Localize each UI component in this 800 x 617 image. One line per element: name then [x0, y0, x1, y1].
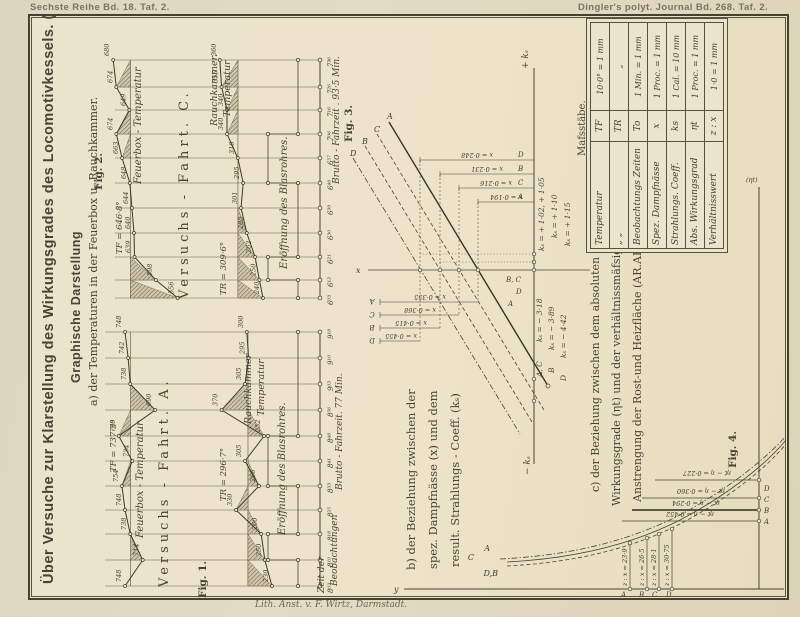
fig1-rauchkammer-series-label-2: Temperatur	[257, 348, 267, 428]
fig4-curve-label-a: A	[483, 544, 490, 553]
fig4-y-axis-label: y	[393, 585, 399, 594]
svg-text:9¹⁸: 9¹⁸	[327, 329, 335, 339]
svg-text:9¹⁰: 9¹⁰	[327, 355, 335, 365]
fig4-eta-label-3: ηt − η = 0·294	[672, 499, 720, 507]
svg-text:240: 240	[253, 282, 261, 295]
fig3-top-dim-1: x = 0·248	[461, 151, 493, 159]
fig4-eta-label-2: ηt − η = 0·360	[677, 487, 725, 495]
svg-text:738: 738	[120, 518, 128, 530]
fig3-line-label-d: D	[349, 149, 357, 158]
fig3-pos-axis-label: + kₛ	[522, 46, 531, 74]
fig4-zx-label-a: z : x = 23·9	[621, 549, 629, 587]
svg-text:6⁰³: 6⁰³	[327, 295, 335, 305]
svg-text:8³³: 8³³	[327, 483, 335, 493]
svg-text:663: 663	[112, 142, 120, 154]
svg-text:748: 748	[115, 570, 123, 582]
svg-text:674: 674	[106, 118, 114, 130]
fig3-bottom-run-a: A	[369, 297, 375, 305]
fig4-zx-label-d: z : x = 30·75	[663, 544, 671, 587]
fig1-rauchkammer-series-label-1: Rauchkammer -	[244, 338, 254, 434]
fig2-rauchkammer-mean-label: TR = 309·6°	[220, 232, 229, 304]
svg-text:262: 262	[245, 241, 253, 254]
svg-text:310: 310	[228, 142, 236, 154]
fig4-base-letter-b: B	[638, 591, 644, 599]
lithographer-credit: Lith. Anst. v. F. Wirtz, Darmstadt.	[255, 600, 407, 610]
fig4-zx-label-c: z : x = 28·1	[650, 549, 658, 587]
fig1-feuerbox-series-label: Feuerbox - Temperatur	[136, 418, 146, 542]
svg-text:260: 260	[251, 518, 259, 531]
fig2-rauchkammer-series-label-1: Rauchkammer.	[210, 42, 220, 138]
fig1-train-label: Versuchs - Fahrt. A.	[158, 376, 171, 588]
fig4-right-letter-d: D	[763, 485, 770, 493]
journal-plate-page: Sechste Reihe Bd. 18. Taf. 2. Dingler's …	[0, 0, 800, 617]
svg-text:748: 748	[115, 316, 123, 328]
svg-text:9⁰³: 9⁰³	[327, 381, 335, 391]
svg-text:714: 714	[133, 544, 141, 556]
fig3-bottom-run-d: D	[369, 336, 376, 344]
svg-text:738: 738	[120, 368, 128, 380]
svg-text:680: 680	[103, 44, 111, 56]
fig2-blasrohr-label: Eröffnung des Blasrohres.	[280, 102, 290, 304]
svg-text:734: 734	[122, 445, 130, 457]
fig4-eta-label-1: ηt − η = 0·227	[682, 469, 731, 477]
svg-text:648: 648	[120, 167, 128, 179]
fig4-eta-label-4: ηt − η = 0·452	[666, 510, 714, 518]
svg-text:690: 690	[145, 394, 153, 406]
fig3-line-label-b: B	[361, 137, 368, 146]
fig2-duration-label: Brutto - Fahrzeit . 93·5 Min.	[333, 62, 342, 184]
fig4-base-letter-c: C	[652, 591, 658, 599]
fig4-base-letter-a: A	[620, 591, 626, 599]
fig4-zx-label-b: z : x = 26·5	[638, 549, 646, 587]
fig1-rauchkammer-mean-label: TR = 296·7°	[220, 438, 229, 510]
svg-text:266: 266	[249, 470, 257, 483]
fig1-blasrohr-label: Eröffnung des Blasrohres.	[278, 368, 288, 570]
fig3-top-run-d: D	[517, 151, 524, 159]
plate-frame: Über Versuche zur Klarstellung des Wirku…	[28, 14, 789, 600]
fig4-base-letter-d: D	[665, 591, 672, 599]
svg-text:295: 295	[233, 167, 241, 180]
svg-text:300: 300	[237, 316, 245, 328]
svg-text:640: 640	[124, 217, 132, 229]
svg-text:305: 305	[235, 368, 243, 380]
svg-text:250: 250	[255, 544, 263, 557]
fig2-rauchkammer-series-label-2: Temperatur	[223, 48, 233, 130]
svg-text:748: 748	[115, 494, 123, 506]
fig4-right-letter-c: C	[764, 496, 770, 504]
fig2-train-label: Versuchs - Fahrt. C.	[178, 88, 191, 300]
svg-text:305: 305	[235, 445, 243, 457]
fig3-bottom-run-b: B	[369, 323, 375, 331]
svg-text:639: 639	[125, 241, 133, 253]
fig1-feuerbox-mean-label: TF = 737·3°	[110, 410, 119, 482]
header-right: Dingler's polyt. Journal Bd. 268. Taf. 2…	[578, 2, 768, 13]
svg-text:598: 598	[146, 264, 154, 276]
fig2-feuerbox-series-label: Feuerbox - Temperatur	[134, 60, 144, 192]
svg-text:8⁴⁸: 8⁴⁸	[327, 433, 335, 443]
svg-text:250: 250	[249, 264, 257, 277]
svg-text:742: 742	[118, 342, 126, 354]
fig3-line-label-a: A	[386, 112, 393, 121]
fig4-curve-label-c: C	[468, 553, 474, 562]
svg-text:370: 370	[212, 394, 220, 406]
fig1-time-axis-label-2: Beobachtungen	[331, 502, 340, 598]
page-subtitle: Graphische Darstellung	[70, 30, 83, 584]
fig4-right-axis-label: (ηt)	[746, 176, 758, 184]
fig1-duration-label: Brutto - Fahrzeit. 77 Min.	[336, 378, 345, 490]
fig4-chart: y (ηt) C A D,B z : x = 23·9 z : x = 26·5…	[390, 172, 786, 598]
scales-table-title: Mafsstäbe.	[578, 100, 588, 156]
fig4-right-letter-b: B	[763, 507, 769, 515]
svg-text:6³⁹: 6³⁹	[327, 205, 335, 215]
fig2-feuerbox-mean-label: TF = 646·8°	[116, 192, 125, 264]
fig4-curve-label-db: D,B	[482, 569, 498, 578]
fig4-right-letter-a: A	[763, 518, 769, 526]
svg-text:6²¹: 6²¹	[327, 254, 335, 264]
svg-text:8⁴¹: 8⁴¹	[327, 458, 335, 468]
fig3-bottom-run-c: C	[369, 310, 375, 318]
fig1-time-axis-label-1: Zeit der	[318, 554, 327, 596]
svg-text:8⁵⁶: 8⁵⁶	[327, 407, 335, 417]
svg-text:230: 230	[262, 570, 270, 583]
page-title: Über Versuche zur Klarstellung des Wirku…	[42, 30, 57, 584]
fig3-line-label-c: C	[374, 125, 380, 134]
fig3-x-axis-label: x	[356, 266, 361, 275]
header-left: Sechste Reihe Bd. 18. Taf. 2.	[30, 2, 170, 13]
svg-text:6¹²: 6¹²	[327, 277, 335, 287]
svg-text:674: 674	[106, 71, 114, 83]
svg-text:556: 556	[168, 282, 176, 294]
svg-text:301: 301	[231, 192, 239, 204]
svg-text:649: 649	[119, 94, 127, 106]
svg-text:285: 285	[237, 217, 245, 230]
svg-text:6³⁰: 6³⁰	[327, 230, 335, 240]
